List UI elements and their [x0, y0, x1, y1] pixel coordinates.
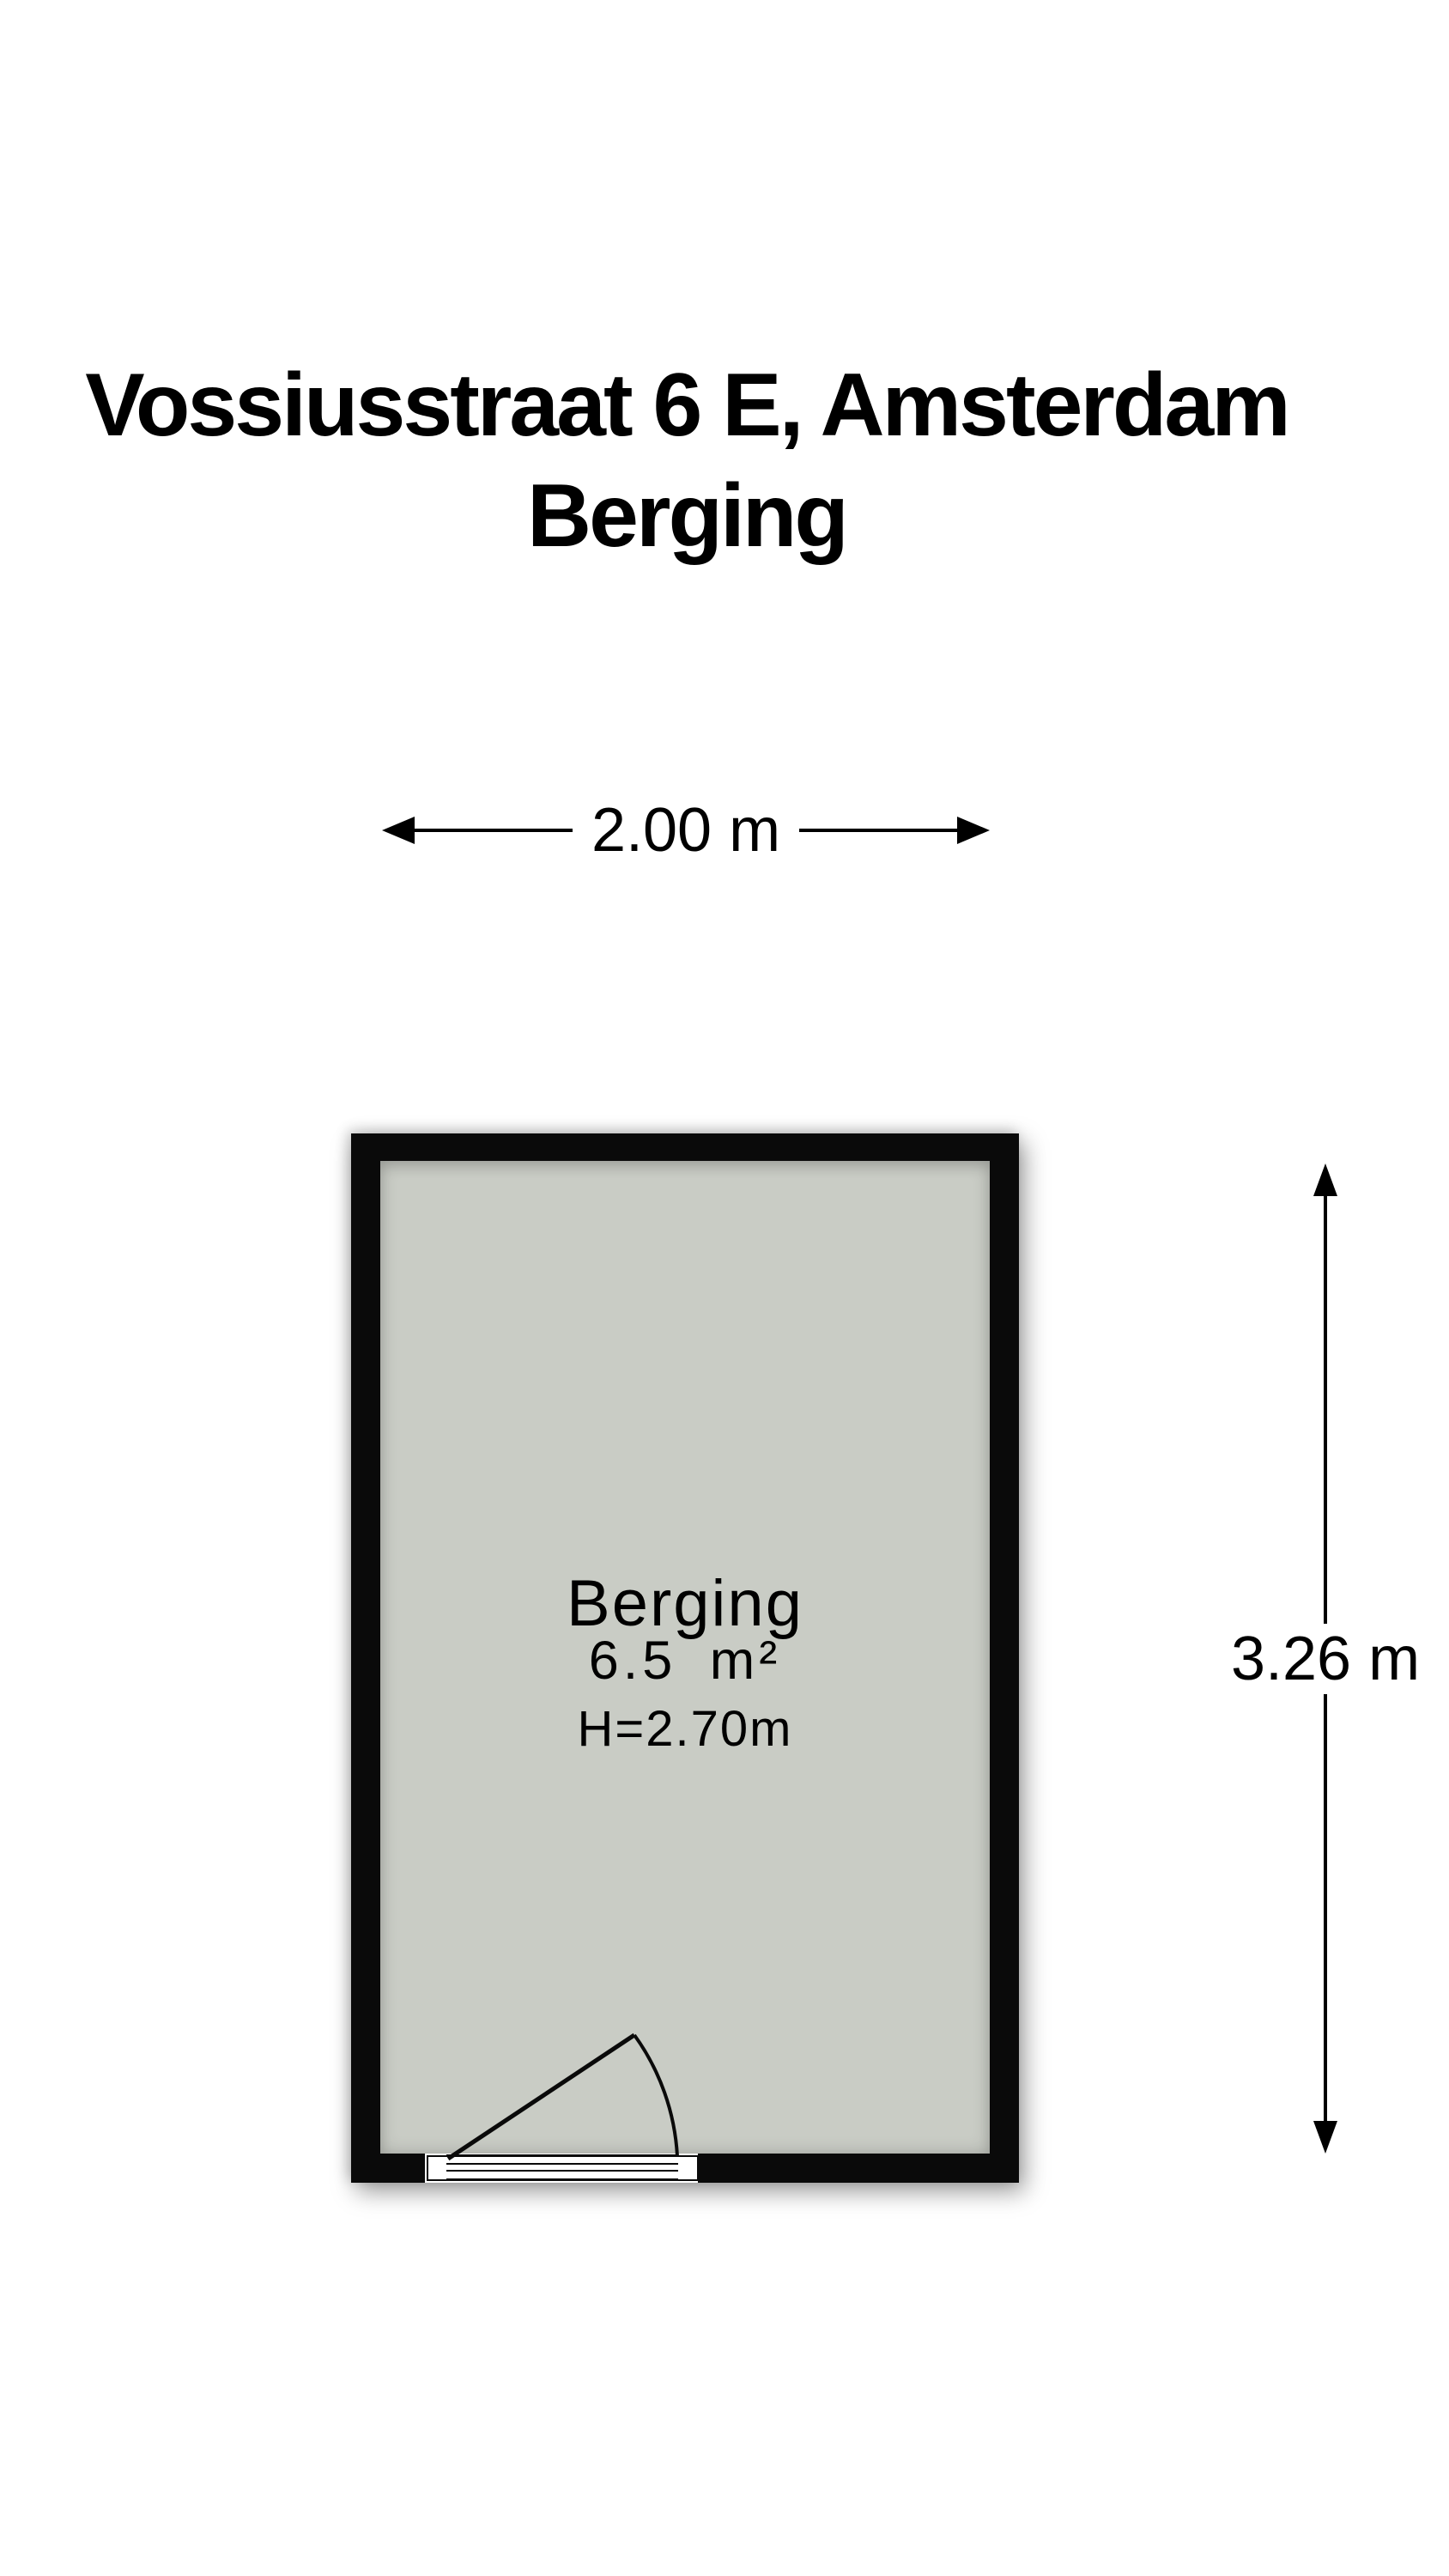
floorplan-page: Vossiusstraat 6 E, Amsterdam Berging 2.0… — [0, 0, 1449, 2576]
dimension-line — [1324, 1196, 1327, 1624]
room-ceiling-height-label: H=2.70m — [382, 1700, 988, 1759]
arrowhead-right-icon — [957, 817, 990, 844]
width-dimension: 2.00 m — [382, 779, 990, 882]
width-dimension-label: 2.00 m — [591, 799, 780, 861]
height-dimension: 3.26 m — [1197, 1163, 1449, 2154]
dimension-line — [799, 829, 957, 832]
dimension-line — [415, 829, 573, 832]
page-title-address: Vossiusstraat 6 E, Amsterdam — [0, 350, 1373, 461]
arrowhead-up-icon — [1313, 1163, 1337, 1196]
page-title: Vossiusstraat 6 E, Amsterdam Berging — [0, 350, 1373, 572]
room-area-label: 6.5 m² — [382, 1629, 988, 1692]
dimension-line — [1324, 1694, 1327, 2122]
arrowhead-left-icon — [382, 817, 415, 844]
height-dimension-label: 3.26 m — [1231, 1628, 1420, 1690]
arrowhead-down-icon — [1313, 2121, 1337, 2154]
page-title-room: Berging — [0, 461, 1373, 572]
